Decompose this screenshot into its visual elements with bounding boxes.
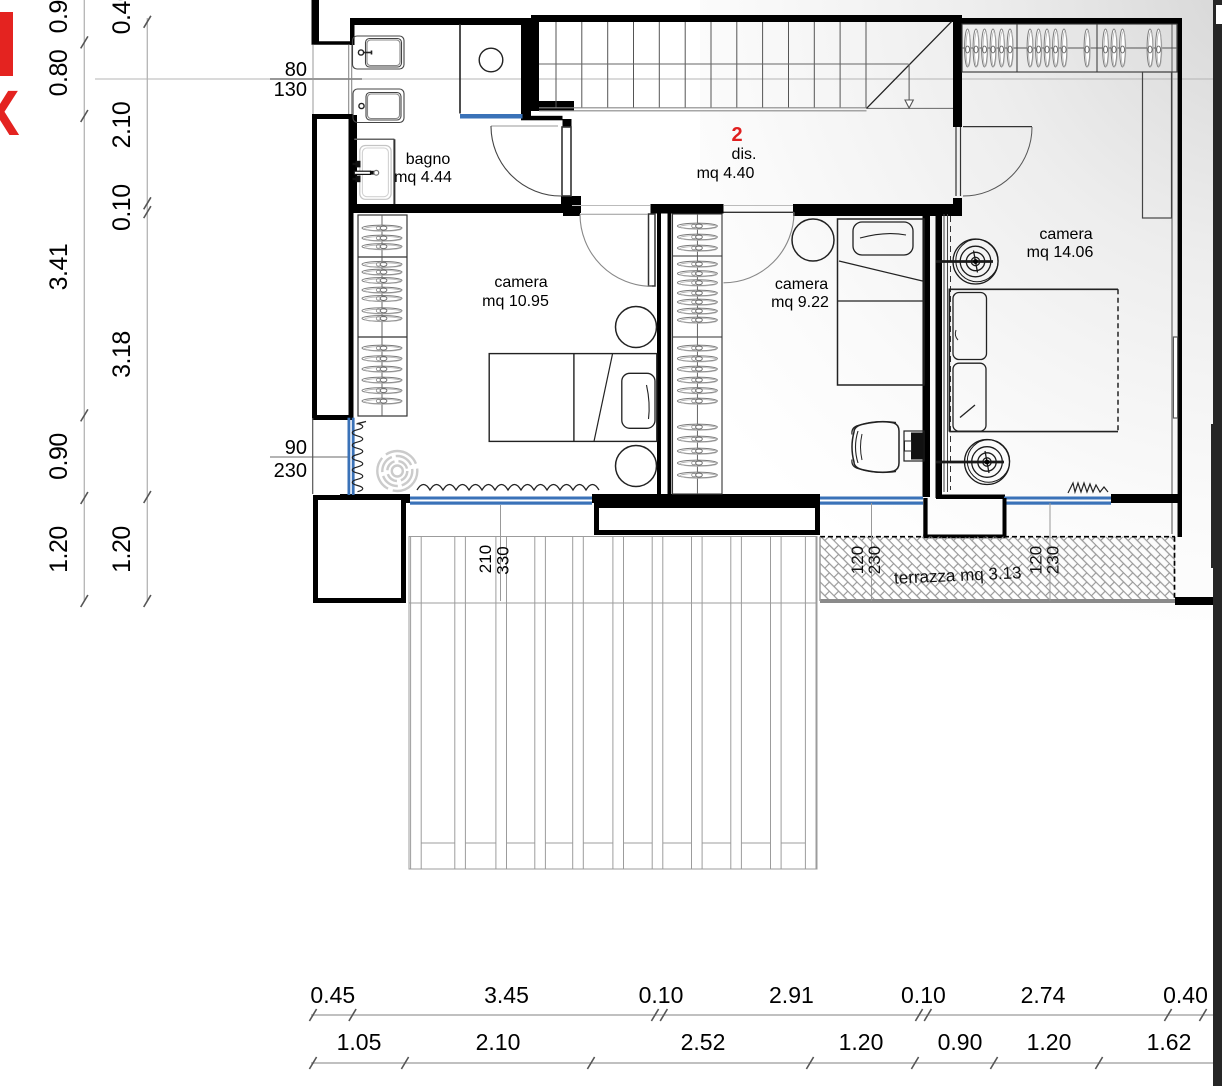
svg-text:X: X — [0, 77, 20, 149]
svg-text:1.05: 1.05 — [337, 1029, 382, 1055]
svg-text:dis.: dis. — [732, 146, 757, 163]
svg-text:90: 90 — [285, 437, 307, 459]
svg-text:230: 230 — [274, 460, 307, 482]
svg-text:2.52: 2.52 — [681, 1029, 726, 1055]
svg-text:1.20: 1.20 — [45, 526, 73, 573]
svg-text:0.10: 0.10 — [639, 982, 684, 1008]
svg-text:210: 210 — [476, 545, 495, 573]
svg-text:mq 9.22: mq 9.22 — [771, 294, 829, 311]
svg-text:0.90: 0.90 — [45, 433, 73, 480]
svg-text:0.10: 0.10 — [108, 184, 136, 231]
svg-text:camera: camera — [494, 274, 547, 291]
svg-text:1.62: 1.62 — [1147, 1029, 1192, 1055]
svg-text:camera: camera — [775, 276, 828, 293]
svg-text:2.10: 2.10 — [476, 1029, 521, 1055]
svg-text:0.10: 0.10 — [901, 982, 946, 1008]
svg-text:0.90: 0.90 — [45, 0, 73, 33]
svg-text:mq 10.95: mq 10.95 — [482, 293, 549, 310]
svg-text:3.41: 3.41 — [45, 244, 73, 291]
svg-text:2.10: 2.10 — [108, 102, 136, 149]
svg-text:0.40: 0.40 — [108, 0, 136, 34]
svg-text:2.74: 2.74 — [1021, 982, 1066, 1008]
svg-text:130: 130 — [274, 79, 307, 101]
svg-text:2: 2 — [731, 124, 742, 146]
svg-text:1.20: 1.20 — [108, 526, 136, 573]
svg-text:0.90: 0.90 — [938, 1029, 983, 1055]
svg-text:2.91: 2.91 — [769, 982, 814, 1008]
svg-text:camera: camera — [1039, 226, 1092, 243]
svg-text:0.40: 0.40 — [1163, 982, 1208, 1008]
svg-text:330: 330 — [494, 546, 513, 574]
svg-text:bagno: bagno — [406, 151, 451, 168]
svg-text:230: 230 — [865, 546, 884, 574]
svg-text:0.45: 0.45 — [310, 982, 355, 1008]
svg-text:3.45: 3.45 — [484, 982, 529, 1008]
svg-text:80: 80 — [285, 59, 307, 81]
svg-text:230: 230 — [1044, 546, 1063, 574]
svg-text:0.80: 0.80 — [45, 50, 73, 97]
svg-text:1.20: 1.20 — [839, 1029, 884, 1055]
svg-text:3.18: 3.18 — [108, 331, 136, 378]
svg-text:mq 4.40: mq 4.40 — [697, 165, 755, 182]
svg-text:mq 14.06: mq 14.06 — [1027, 244, 1094, 261]
svg-text:1.20: 1.20 — [1027, 1029, 1072, 1055]
svg-text:mq 4.44: mq 4.44 — [394, 169, 452, 186]
